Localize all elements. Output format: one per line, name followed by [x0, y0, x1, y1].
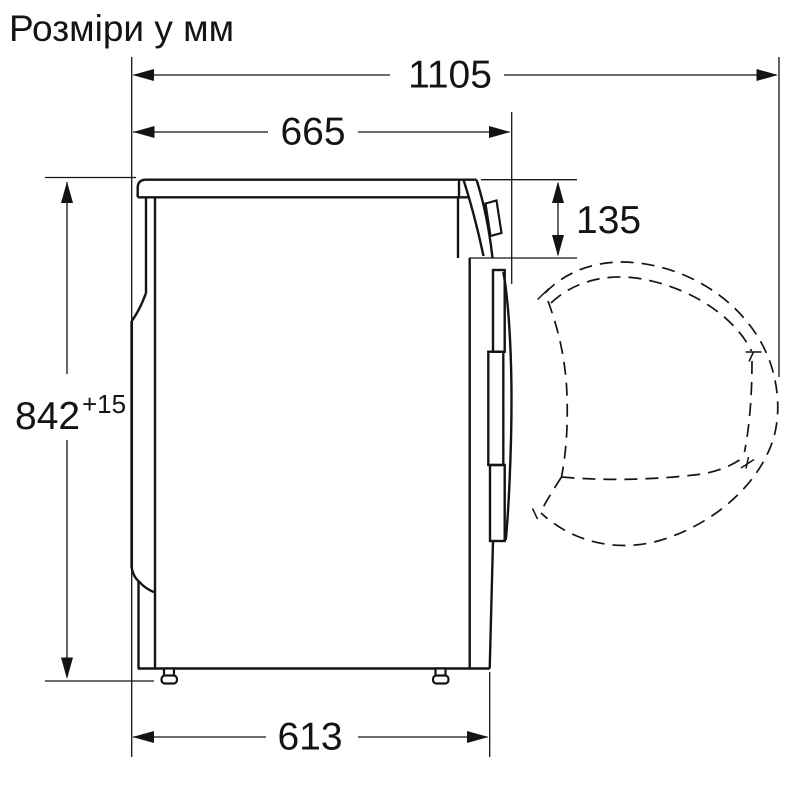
door-open-face-right-edge: [745, 361, 753, 452]
dimension-value-135: 135: [576, 199, 641, 242]
door-open-face-bottom-edge: [562, 459, 742, 479]
arrowhead-right-613: [467, 731, 489, 743]
dimension-base-depth: 613: [133, 716, 489, 759]
diagram-title: Розміри у мм: [9, 8, 234, 49]
rear-cover-top-curve: [132, 293, 146, 321]
dimension-overall-depth-door-open: 1105: [133, 54, 779, 97]
dimension-value-665: 665: [280, 111, 345, 154]
dimension-tolerance-plus15: +15: [82, 389, 126, 419]
dimension-depth-total: 665: [133, 111, 511, 154]
foot-left-base: [162, 676, 178, 684]
arrowhead-up-135: [552, 182, 564, 204]
dimension-top-panel-offset: 135: [552, 182, 641, 257]
door-open-swing-dashed: [533, 262, 778, 545]
front-panel-below-door: [490, 541, 493, 669]
door-frame-lower: [490, 465, 505, 541]
door-hinge-tick-right-lower: [741, 457, 754, 469]
dimension-value-842: 842: [15, 395, 80, 438]
arrowhead-right-665: [489, 126, 511, 138]
door-open-bottom-left-join: [541, 477, 562, 512]
door-open-rim-inner-arc: [551, 277, 752, 351]
appliance-dimension-diagram: Розміри у мм 1105 665: [0, 0, 800, 800]
door-open-face-left-edge: [548, 301, 567, 477]
diagram-canvas: Розміри у мм 1105 665: [0, 0, 800, 800]
dimension-value-1105: 1105: [408, 54, 492, 97]
dimension-height: 842 +15: [15, 182, 126, 680]
door-frame-middle: [488, 352, 503, 465]
worktop-top-edge: [138, 180, 477, 198]
arrowhead-right-1105: [757, 69, 779, 81]
arrowhead-left-613: [133, 731, 155, 743]
dimension-value-613: 613: [277, 716, 342, 759]
arrowhead-down-135: [552, 235, 564, 257]
foot-right-base: [433, 676, 449, 684]
arrowhead-left-1105: [133, 69, 155, 81]
rear-cover-bottom-curve-outer: [132, 568, 139, 581]
arrowhead-down-842: [61, 658, 73, 680]
machine-side-view: [132, 180, 512, 684]
door-hinge-tick-top-left: [538, 289, 550, 300]
arrowhead-up-842: [61, 182, 73, 204]
door-hinge-tick-bottom-left: [533, 509, 538, 520]
rear-cover-bottom-curve-inner: [139, 581, 156, 593]
arrowhead-left-665: [133, 126, 155, 138]
door-frame-upper: [493, 270, 505, 352]
door-open-outer-sweep: [541, 262, 778, 545]
door-hinge-tick-right-upper: [746, 352, 762, 362]
